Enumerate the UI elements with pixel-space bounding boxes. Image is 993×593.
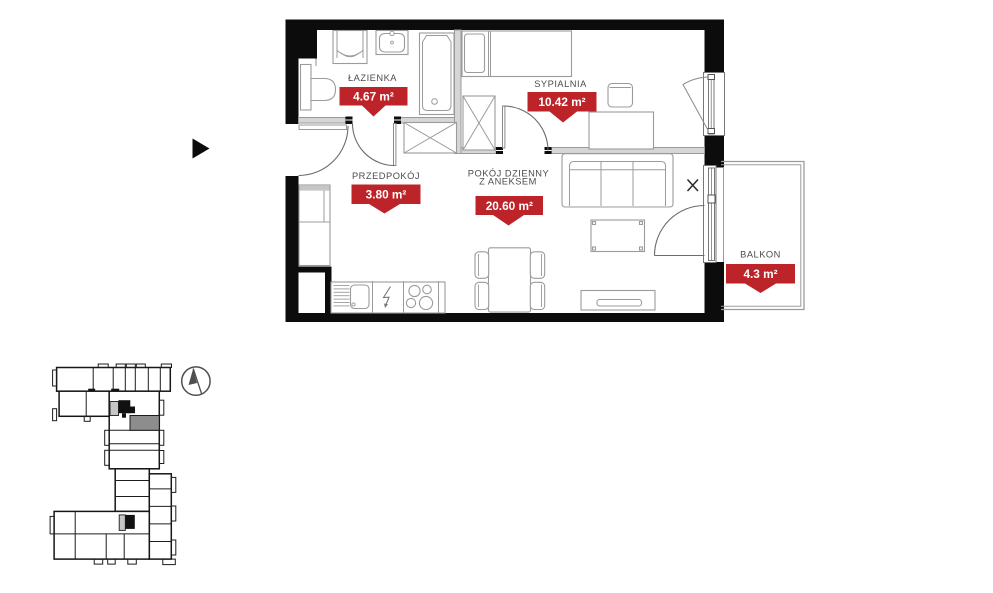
svg-text:PRZEDPOKÓJ: PRZEDPOKÓJ [352,171,420,181]
svg-text:4.67 m²: 4.67 m² [353,90,394,104]
svg-text:SYPIALNIA: SYPIALNIA [534,79,587,89]
svg-text:3.80 m²: 3.80 m² [366,188,407,202]
svg-text:ŁAZIENKA: ŁAZIENKA [348,73,397,83]
svg-text:BALKON: BALKON [740,250,781,260]
svg-text:Z ANEKSEM: Z ANEKSEM [479,177,537,187]
svg-text:4.3 m²: 4.3 m² [743,267,777,281]
svg-text:20.60 m²: 20.60 m² [486,199,533,213]
svg-text:10.42 m²: 10.42 m² [538,95,585,109]
